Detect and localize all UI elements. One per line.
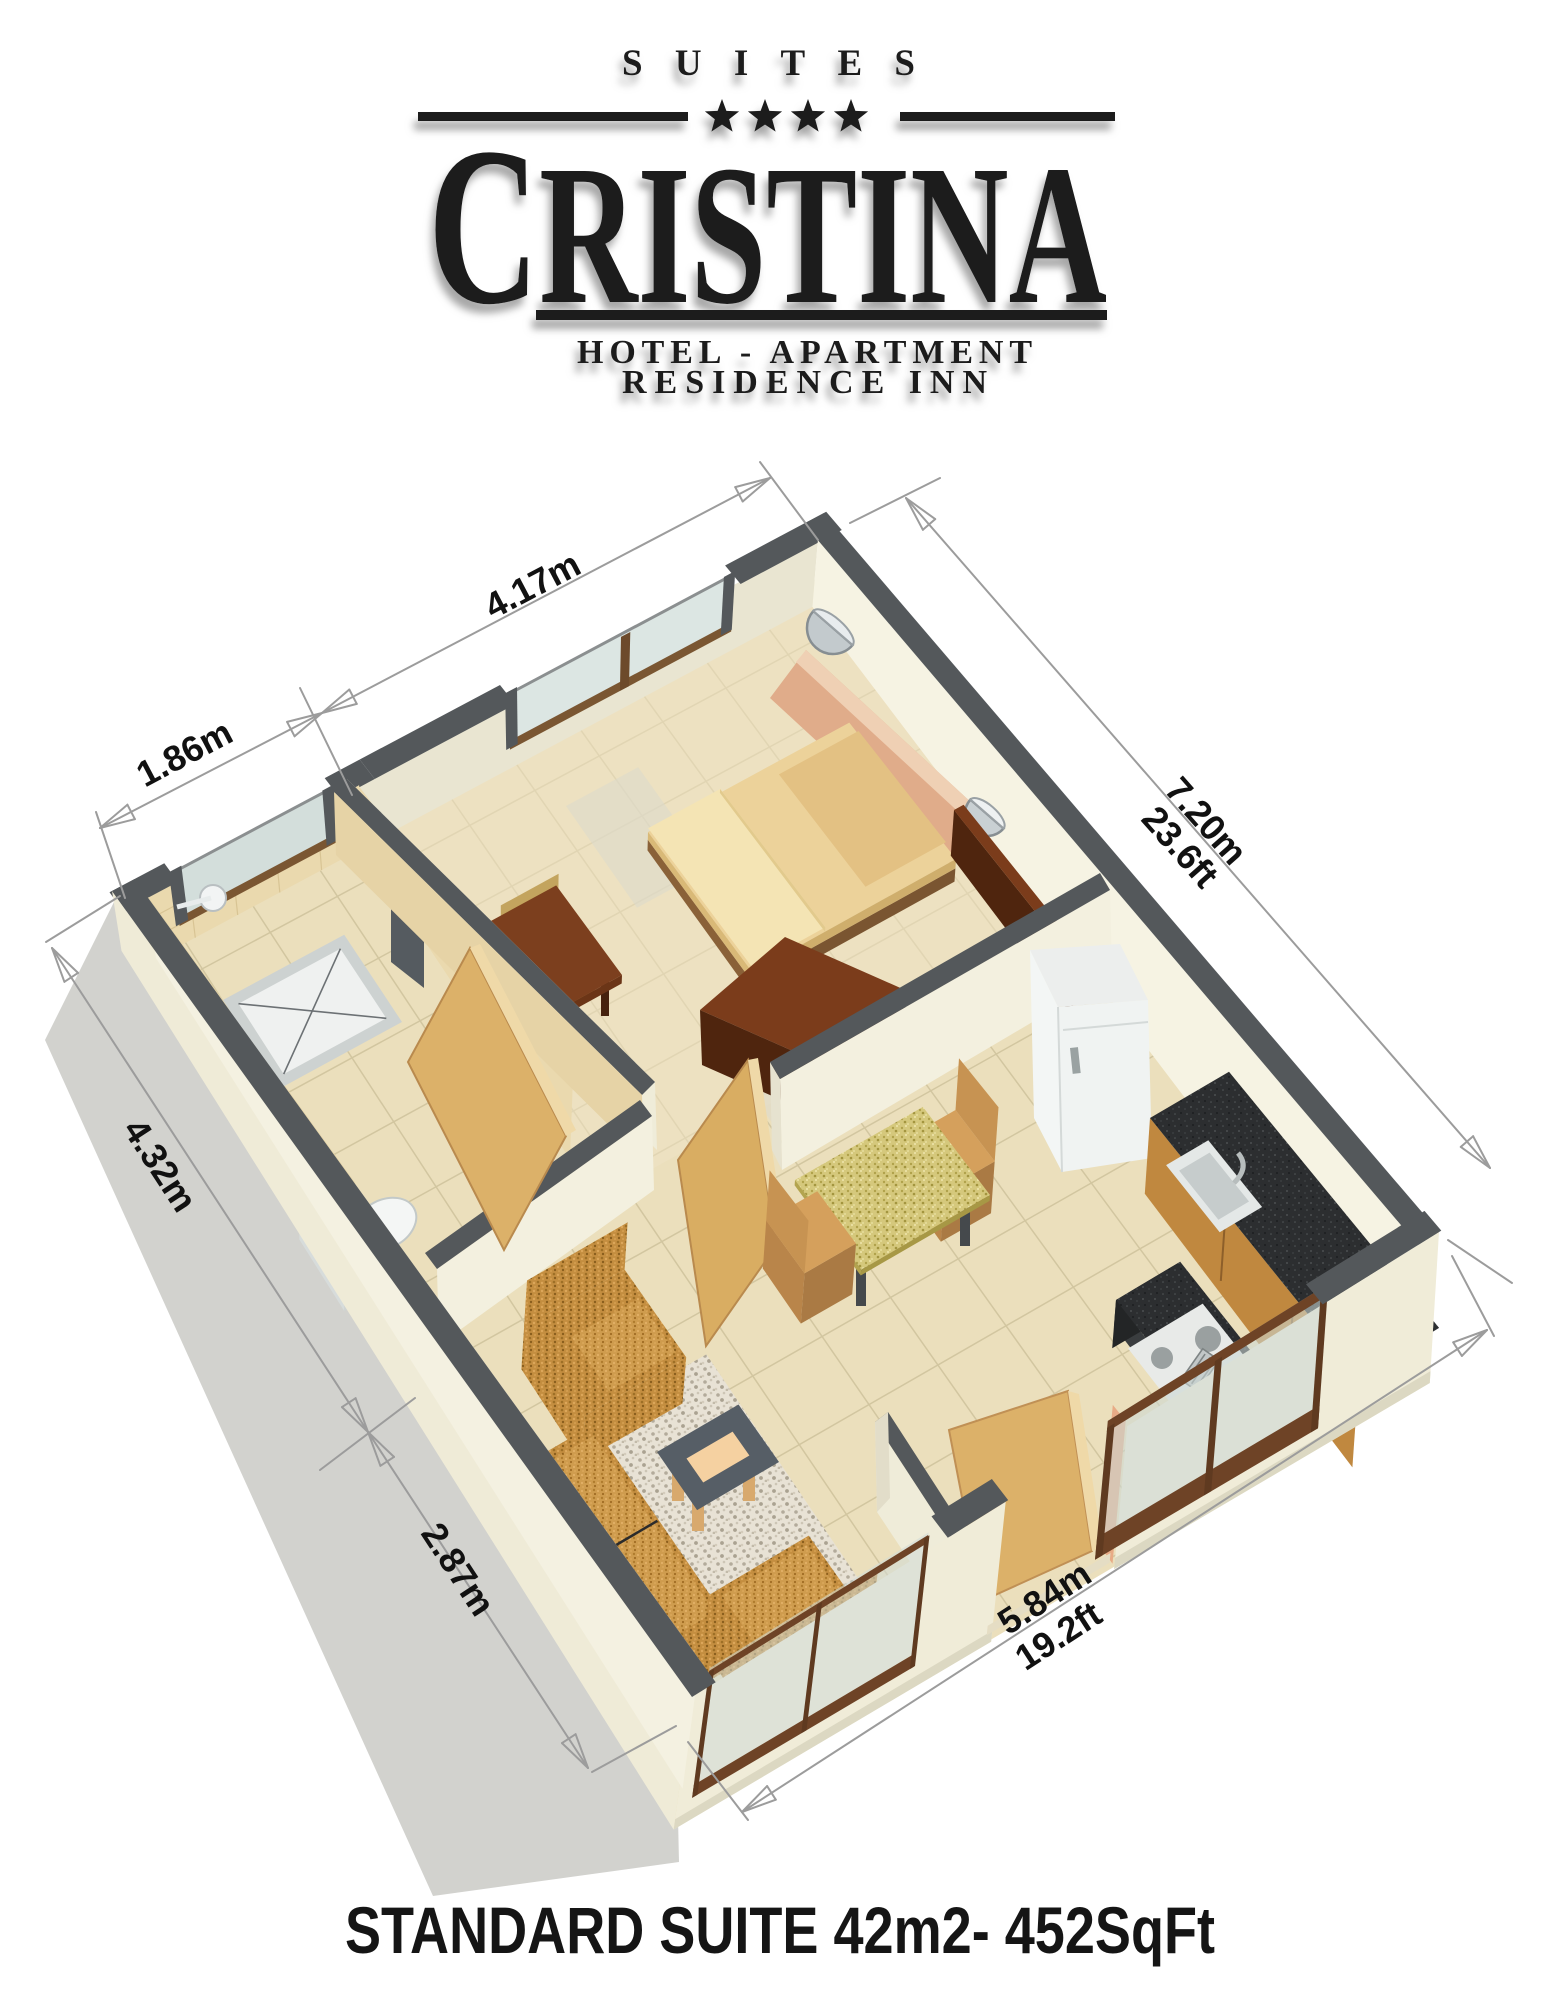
- svg-text:RESIDENCE INN: RESIDENCE INN: [622, 364, 987, 401]
- svg-text:STANDARD SUITE 42m2- 452SqFt: STANDARD SUITE 42m2- 452SqFt: [345, 1893, 1215, 1967]
